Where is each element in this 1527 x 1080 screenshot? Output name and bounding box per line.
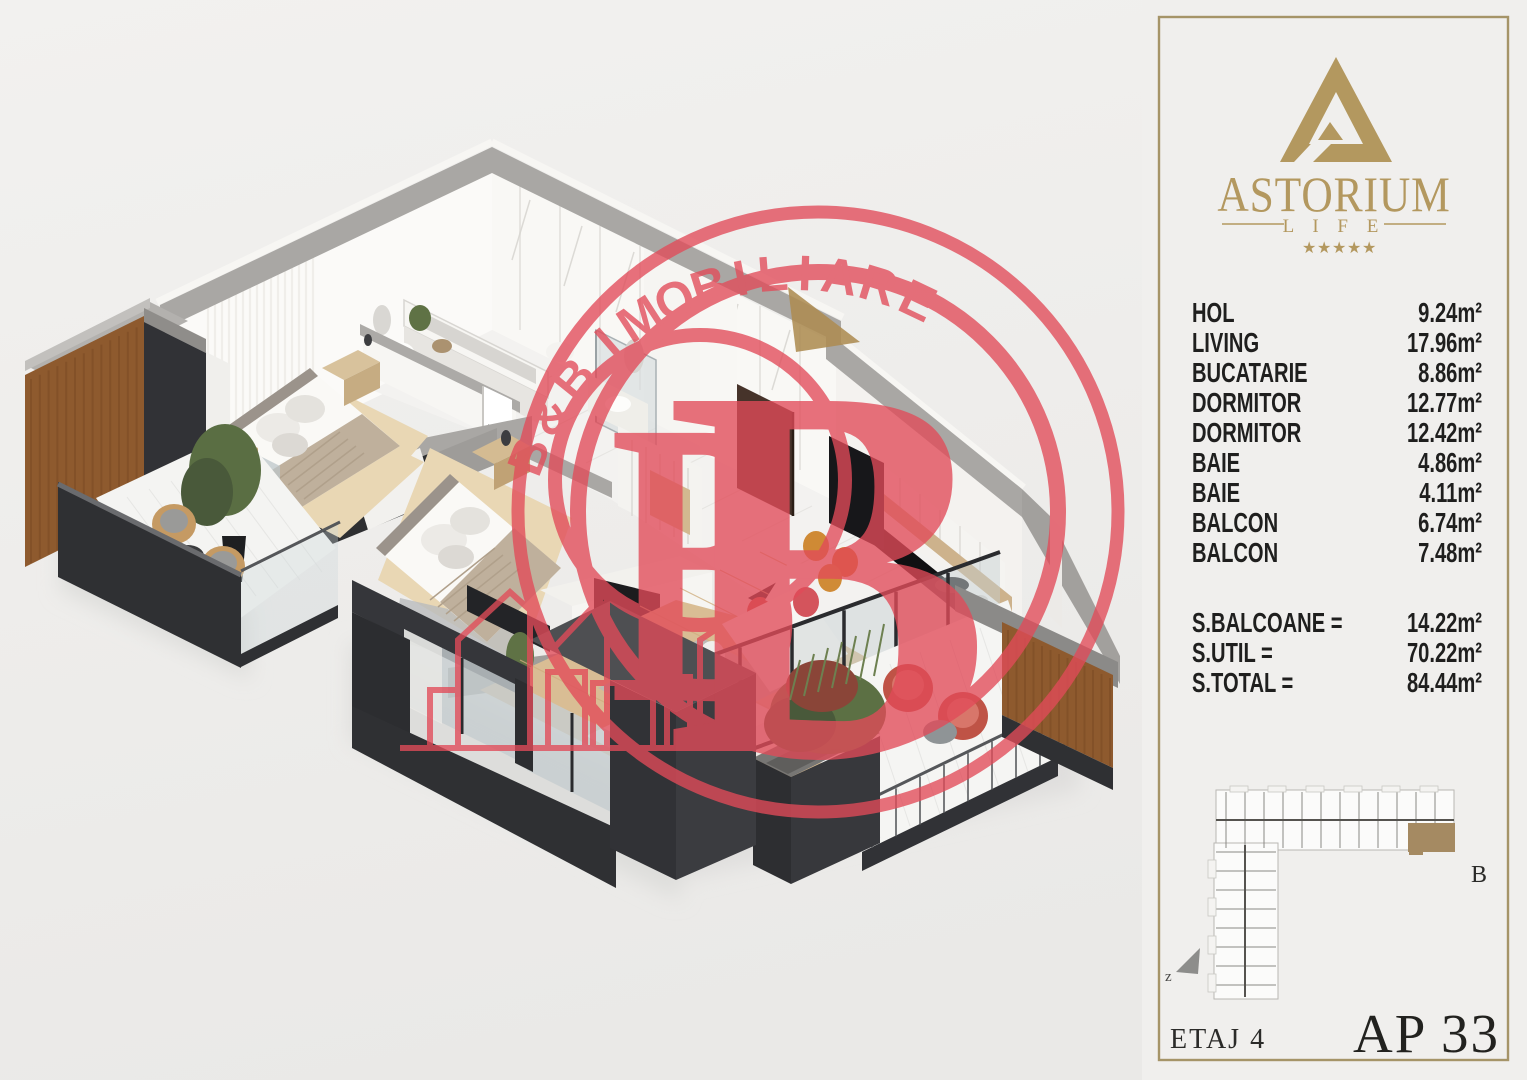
svg-text:14.22m²: 14.22m² (1407, 608, 1482, 639)
svg-text:4.11m²: 4.11m² (1419, 478, 1482, 509)
svg-text:9.24m²: 9.24m² (1418, 298, 1482, 329)
svg-text:ETAJ 4: ETAJ 4 (1170, 1024, 1266, 1055)
svg-text:z: z (1165, 969, 1172, 985)
svg-text:★: ★ (1302, 240, 1316, 257)
svg-text:B: B (1471, 862, 1487, 888)
svg-text:HOL: HOL (1192, 298, 1235, 329)
svg-text:B: B (665, 277, 990, 864)
svg-text:★: ★ (1332, 240, 1346, 257)
svg-text:BALCON: BALCON (1192, 508, 1278, 539)
svg-text:S.BALCOANE =: S.BALCOANE = (1192, 608, 1343, 639)
svg-text:LIVING: LIVING (1192, 328, 1259, 359)
svg-text:S.TOTAL =: S.TOTAL = (1192, 668, 1293, 699)
svg-text:4.86m²: 4.86m² (1418, 448, 1482, 479)
svg-text:BUCATARIE: BUCATARIE (1192, 358, 1308, 389)
svg-text:8.86m²: 8.86m² (1418, 358, 1482, 389)
svg-text:7.48m²: 7.48m² (1418, 538, 1482, 569)
svg-text:I: I (797, 245, 813, 301)
svg-text:AP 33: AP 33 (1353, 1003, 1500, 1064)
svg-text:84.44m²: 84.44m² (1407, 668, 1482, 699)
svg-text:ASTORIUM: ASTORIUM (1217, 167, 1450, 222)
svg-text:6.74m²: 6.74m² (1418, 508, 1482, 539)
svg-text:★: ★ (1362, 240, 1376, 257)
svg-text:DORMITOR: DORMITOR (1192, 388, 1302, 419)
svg-text:L: L (755, 245, 790, 303)
svg-text:S.UTIL =: S.UTIL = (1192, 638, 1273, 669)
svg-text:BAIE: BAIE (1192, 448, 1240, 479)
svg-text:DORMITOR: DORMITOR (1192, 418, 1302, 449)
svg-text:17.96m²: 17.96m² (1407, 328, 1482, 359)
svg-text:12.77m²: 12.77m² (1407, 388, 1482, 419)
svg-text:70.22m²: 70.22m² (1407, 638, 1482, 669)
svg-text:L I F E: L I F E (1283, 216, 1386, 237)
svg-text:★: ★ (1317, 240, 1331, 257)
svg-text:12.42m²: 12.42m² (1407, 418, 1482, 449)
svg-text:BAIE: BAIE (1192, 478, 1240, 509)
svg-text:★: ★ (1347, 240, 1361, 257)
svg-text:BALCON: BALCON (1192, 538, 1278, 569)
